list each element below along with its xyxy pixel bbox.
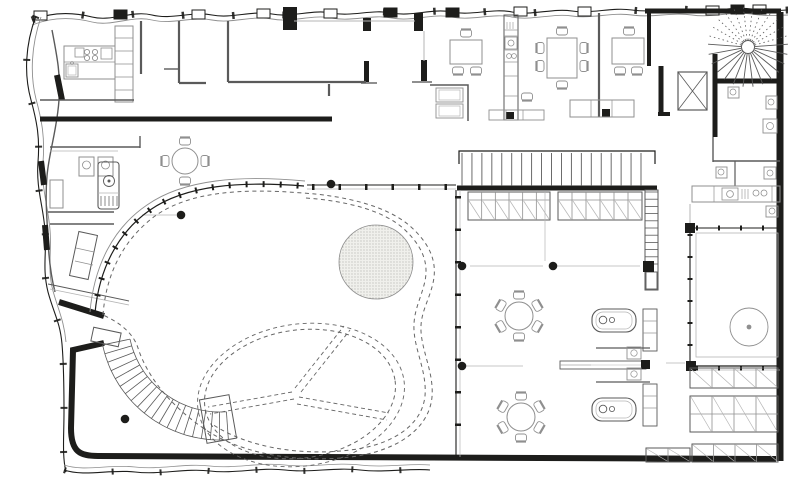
chair-seat (201, 156, 209, 167)
door-post (421, 60, 427, 83)
chair-seat (537, 61, 545, 72)
chair (180, 138, 191, 146)
chair (461, 30, 472, 38)
skylight-circle-stipple (339, 225, 413, 299)
column-square (641, 360, 650, 369)
chair (537, 43, 545, 54)
chair-seat (624, 28, 635, 36)
glazing-post (685, 223, 695, 233)
chair (615, 67, 626, 75)
chair (537, 61, 545, 72)
column (458, 262, 467, 271)
mullion-block (578, 7, 591, 16)
patio-tree-trunk (747, 325, 752, 330)
door-post (364, 61, 369, 83)
wall-post (506, 112, 514, 119)
chair-seat (557, 28, 568, 36)
glazing-post (686, 361, 696, 371)
chair (516, 434, 527, 442)
chair-seat (514, 292, 525, 300)
wall-black-segment (45, 225, 47, 250)
wall-post (363, 18, 371, 31)
mullion-block (192, 10, 205, 19)
column (327, 180, 336, 189)
chair (201, 156, 209, 167)
wall-post (283, 7, 297, 30)
chair-seat (453, 67, 464, 75)
chair (162, 156, 170, 167)
column (177, 211, 186, 220)
chair (557, 28, 568, 36)
wall-post (414, 13, 423, 31)
table-top (505, 302, 533, 330)
counter-stool (522, 93, 533, 101)
chair-seat (162, 156, 170, 167)
floor-plan (0, 0, 800, 481)
column (121, 415, 130, 424)
chair (471, 67, 482, 75)
chair (557, 81, 568, 89)
table-top (507, 403, 535, 431)
chair-seat (632, 67, 643, 75)
stove-unit-dot (108, 180, 111, 183)
mullion-block (446, 8, 459, 17)
floor-plan-canvas (0, 0, 800, 481)
chair-seat (471, 67, 482, 75)
mullion-block (324, 9, 337, 18)
wall-black-segment (41, 161, 44, 185)
column (549, 262, 558, 271)
chair-seat (537, 43, 545, 54)
chair-seat (615, 67, 626, 75)
column-square (643, 261, 654, 272)
chair-seat (557, 81, 568, 89)
chair (580, 61, 588, 72)
chair-seat (522, 93, 533, 101)
chair (516, 393, 527, 401)
chair (580, 43, 588, 54)
table-top (172, 148, 198, 174)
chair (453, 67, 464, 75)
chair-seat (514, 333, 525, 341)
chair-seat (461, 30, 472, 38)
chair-seat (580, 43, 588, 54)
mullion-block (257, 9, 270, 18)
chair (624, 28, 635, 36)
chair-seat (180, 138, 191, 146)
chair (632, 67, 643, 75)
chair-seat (516, 434, 527, 442)
column (458, 362, 467, 371)
chair-seat (516, 393, 527, 401)
mullion-block (384, 8, 397, 17)
chair (514, 333, 525, 341)
wall-post (602, 109, 610, 117)
chair-seat (180, 177, 191, 185)
chair-seat (580, 61, 588, 72)
chair (514, 292, 525, 300)
chair (180, 177, 191, 185)
mullion-block (114, 10, 127, 19)
